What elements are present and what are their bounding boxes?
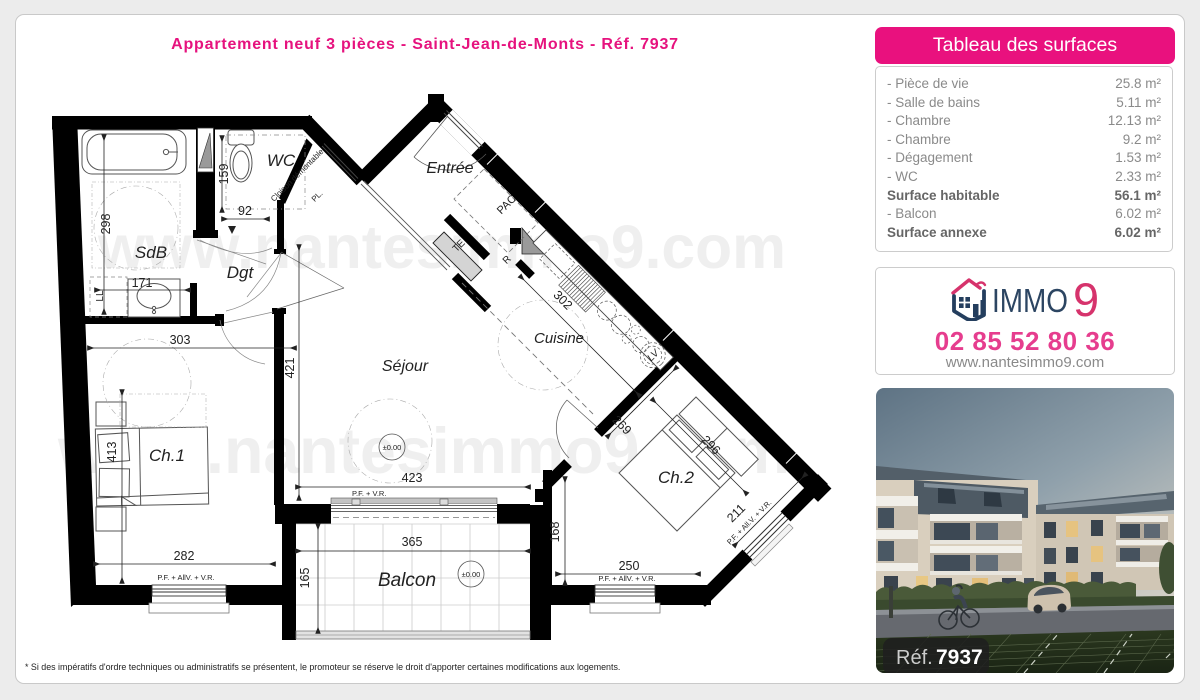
svg-text:298: 298 xyxy=(99,214,113,235)
svg-text:165: 165 xyxy=(298,568,312,589)
svg-text:250: 250 xyxy=(619,559,640,573)
svg-text:159: 159 xyxy=(217,164,231,185)
svg-text:168: 168 xyxy=(548,522,562,543)
svg-text:Balcon: Balcon xyxy=(378,570,436,591)
svg-text:PL.: PL. xyxy=(310,189,325,204)
svg-text:P.F. + AllV. + V.R.: P.F. + AllV. + V.R. xyxy=(598,574,655,583)
svg-text:Dgt: Dgt xyxy=(227,263,255,282)
svg-text:LL: LL xyxy=(95,290,106,302)
svg-text:SdB: SdB xyxy=(135,243,167,262)
svg-text:Entrée: Entrée xyxy=(426,160,473,177)
svg-text:IMMO: IMMO xyxy=(992,282,1068,319)
svg-text:Cuisine: Cuisine xyxy=(534,330,584,347)
svg-text:Ch.2: Ch.2 xyxy=(658,468,694,487)
svg-text:421: 421 xyxy=(283,358,297,379)
svg-text:Ch.1: Ch.1 xyxy=(149,446,185,465)
svg-text:9: 9 xyxy=(1073,275,1099,321)
svg-text:P.F. + V.R.: P.F. + V.R. xyxy=(352,489,386,498)
svg-text:282: 282 xyxy=(174,549,195,563)
svg-text:423: 423 xyxy=(402,471,423,485)
svg-text:P.F. + AllV. + V.R.: P.F. + AllV. + V.R. xyxy=(157,573,214,582)
svg-text:Réf.: Réf. xyxy=(896,647,933,669)
svg-text:413: 413 xyxy=(105,442,119,463)
svg-text:92: 92 xyxy=(238,204,252,218)
svg-text:±0.00: ±0.00 xyxy=(462,570,481,579)
svg-text:365: 365 xyxy=(402,535,423,549)
svg-text:302: 302 xyxy=(551,288,576,313)
svg-text:Séjour: Séjour xyxy=(382,358,429,375)
svg-text:303: 303 xyxy=(170,333,191,347)
svg-text:WC: WC xyxy=(267,151,296,170)
svg-text:±0.00: ±0.00 xyxy=(383,443,402,452)
svg-text:171: 171 xyxy=(132,276,153,290)
svg-text:7937: 7937 xyxy=(936,646,983,669)
